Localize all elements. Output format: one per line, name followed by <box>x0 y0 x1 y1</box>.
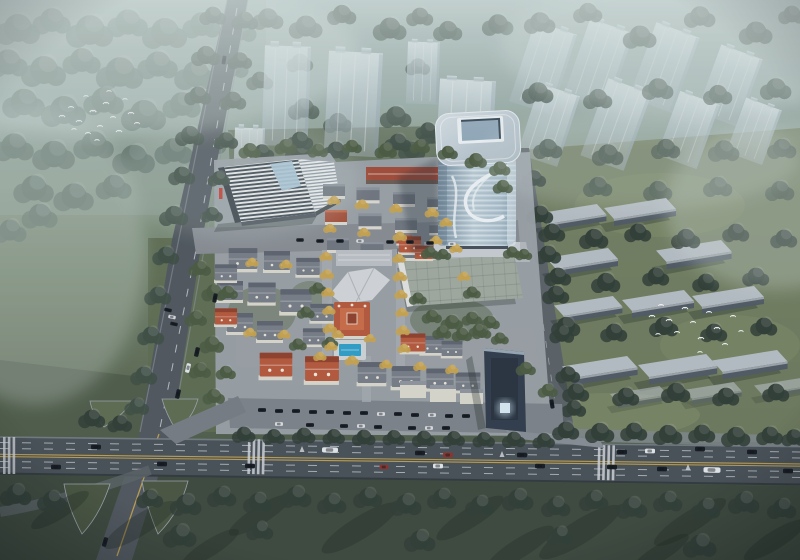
rendering-stage: Aerial architectural rendering of a mixe… <box>0 0 800 560</box>
masterplan-rendering: Aerial architectural rendering of a mixe… <box>0 0 800 560</box>
atmosphere-fx <box>0 0 800 560</box>
vignette <box>0 0 800 560</box>
